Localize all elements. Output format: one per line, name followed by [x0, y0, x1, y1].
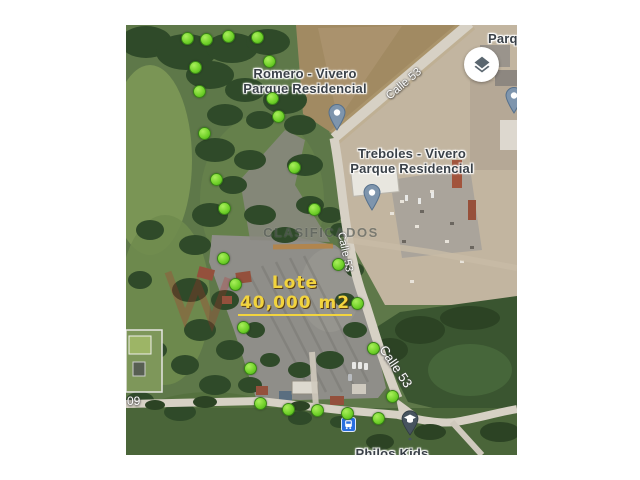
boundary-dot — [263, 55, 276, 68]
label-treboles-vivero: Treboles - Vivero Parque Residencial — [332, 146, 492, 176]
boundary-dot — [254, 397, 267, 410]
lot-title: Lote — [230, 273, 360, 293]
boundary-dot — [351, 297, 364, 310]
romero-map-pin[interactable] — [327, 103, 347, 136]
label-romero-line2: Parque Residencial — [225, 81, 385, 96]
label-parque-partial: Parque — [488, 31, 517, 46]
lot-size-annotation: Lote 40,000 m2 — [230, 273, 360, 316]
lot-area-value: 40,000 m2 — [238, 293, 352, 316]
layers-icon — [472, 55, 492, 75]
boundary-dot — [282, 403, 295, 416]
boundary-dot — [288, 161, 301, 174]
boundary-dot — [218, 202, 231, 215]
boundary-dot — [217, 252, 230, 265]
boundary-dot — [311, 404, 324, 417]
boundary-dot — [189, 61, 202, 74]
treboles-map-pin[interactable] — [362, 183, 382, 216]
school-map-pin[interactable] — [399, 409, 421, 446]
layers-button[interactable] — [464, 47, 499, 82]
screenshot-frame: CLASIFICADOS Romero - Vivero Parque Resi… — [0, 0, 640, 480]
edge-map-pin[interactable] — [504, 86, 517, 119]
boundary-dot — [266, 92, 279, 105]
boundary-dot — [332, 258, 345, 271]
boundary-dot — [222, 30, 235, 43]
boundary-dot — [237, 321, 250, 334]
boundary-dot — [367, 342, 380, 355]
boundary-dot — [210, 173, 223, 186]
boundary-dot — [386, 390, 399, 403]
boundary-dot — [308, 203, 321, 216]
boundary-dot — [198, 127, 211, 140]
classifieds-watermark: CLASIFICADOS — [241, 225, 401, 240]
boundary-dot — [272, 110, 285, 123]
satellite-map[interactable]: CLASIFICADOS Romero - Vivero Parque Resi… — [126, 25, 517, 455]
boundary-dot — [244, 362, 257, 375]
label-romero-line1: Romero - Vivero — [225, 66, 385, 81]
boundary-dot — [193, 85, 206, 98]
boundary-dot — [181, 32, 194, 45]
label-romero-vivero: Romero - Vivero Parque Residencial — [225, 66, 385, 96]
boundary-dot — [229, 278, 242, 291]
label-treboles-line2: Parque Residencial — [332, 161, 492, 176]
boundary-dot — [341, 407, 354, 420]
watermark-underline — [273, 243, 333, 249]
boundary-dot — [200, 33, 213, 46]
label-street-09: 09 — [127, 394, 140, 408]
label-philos-kids: Philos Kids — [342, 446, 442, 455]
boundary-dot — [372, 412, 385, 425]
boundary-dot — [251, 31, 264, 44]
label-treboles-line1: Treboles - Vivero — [332, 146, 492, 161]
